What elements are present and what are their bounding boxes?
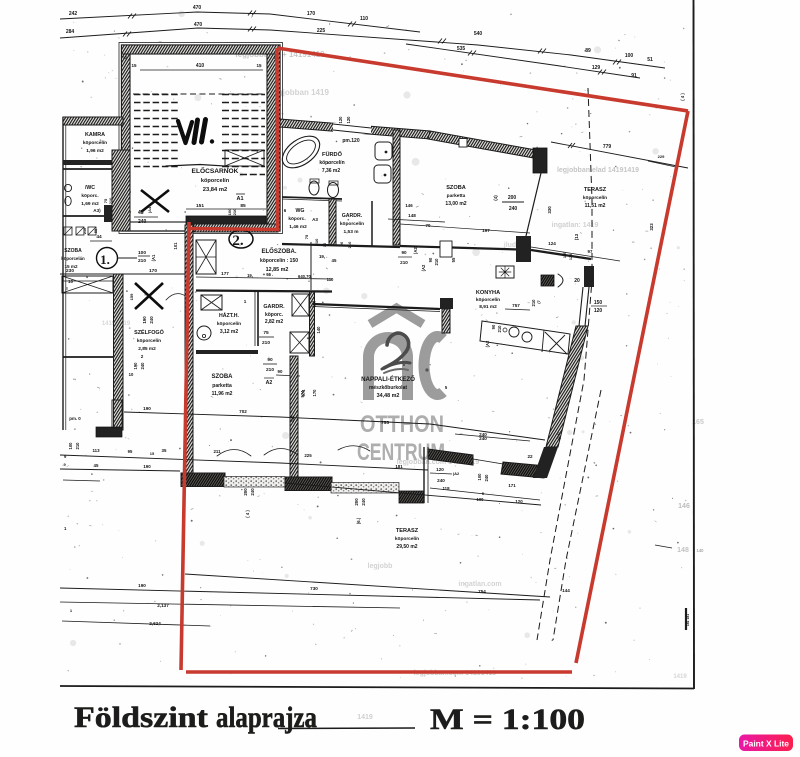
svg-text:535: 535 — [457, 46, 466, 52]
svg-text:240: 240 — [437, 478, 445, 483]
svg-text:129: 129 — [592, 65, 601, 71]
svg-text:75: 75 — [263, 330, 269, 336]
svg-text:köporcelín: köporcelín — [137, 338, 161, 344]
svg-text:(A1: (A1 — [151, 254, 156, 261]
svg-text:242: 242 — [69, 11, 78, 17]
svg-text:+ 95 .: + 95 . — [263, 272, 274, 277]
svg-text:640,70,: 640,70, — [298, 274, 312, 279]
svg-text:köporcelán: köporcelán — [61, 256, 85, 261]
svg-text:470: 470 — [194, 22, 203, 28]
svg-text:240: 240 — [149, 316, 154, 324]
svg-text:211: 211 — [213, 449, 221, 454]
svg-text:159: 159 — [129, 293, 134, 300]
svg-text:pm.120: pm.120 — [342, 138, 359, 144]
svg-text:140: 140 — [697, 548, 705, 553]
svg-text:1: 1 — [244, 299, 247, 304]
svg-text:210: 210 — [232, 208, 237, 215]
svg-text:A3: A3 — [312, 217, 318, 222]
svg-text:150: 150 — [594, 300, 603, 306]
svg-text:120: 120 — [346, 116, 351, 124]
svg-text:(13: (13 — [574, 233, 579, 240]
svg-text:323: 323 — [649, 223, 654, 231]
svg-text:225: 225 — [304, 453, 312, 458]
svg-text:210: 210 — [400, 260, 408, 265]
svg-text:190: 190 — [133, 362, 138, 370]
svg-text:181 181: 181 181 — [686, 614, 690, 626]
svg-text:1.: 1. — [100, 252, 110, 267]
svg-text:90: 90 — [401, 250, 407, 255]
svg-text:124: 124 — [548, 241, 556, 246]
svg-text:44: 44 — [96, 234, 102, 240]
svg-text:ELŐSZOBA.: ELŐSZOBA. — [261, 248, 296, 255]
svg-text:19,: 19, — [247, 273, 253, 278]
svg-text:(A2: (A2 — [485, 340, 490, 347]
svg-text:225: 225 — [317, 28, 326, 34]
svg-text:1,96 m2: 1,96 m2 — [86, 148, 104, 154]
svg-text:22: 22 — [527, 454, 533, 459]
svg-text:779: 779 — [603, 144, 612, 150]
svg-text:702: 702 — [239, 409, 247, 414]
svg-text:346: 346 — [290, 415, 295, 422]
svg-text:7,36 m2: 7,36 m2 — [322, 168, 341, 174]
svg-text:köporcelín: köporcelín — [583, 195, 607, 201]
svg-text:90: 90 — [278, 369, 283, 374]
svg-text:(A2: (A2 — [453, 471, 460, 476]
svg-text:95: 95 — [128, 449, 133, 454]
svg-text:2: 2 — [141, 354, 144, 359]
svg-text:91: 91 — [631, 73, 637, 79]
svg-text:190: 190 — [143, 464, 151, 469]
svg-text:jlud: jlud — [503, 242, 516, 249]
svg-text:( 4 ): ( 4 ) — [245, 510, 250, 518]
svg-text:45: 45 — [138, 210, 144, 216]
svg-text:197: 197 — [482, 228, 490, 233]
svg-text:(A2: (A2 — [421, 264, 426, 271]
svg-text:90: 90 — [428, 257, 433, 262]
svg-text:90: 90 — [267, 357, 273, 363]
svg-text:170: 170 — [307, 11, 316, 17]
svg-text:210: 210 — [266, 367, 274, 373]
svg-text:240: 240 — [361, 498, 366, 506]
svg-text:1,69 m2: 1,69 m2 — [81, 201, 99, 207]
svg-text:köporcelín: köporcelín — [395, 536, 419, 542]
svg-text:240: 240 — [484, 474, 489, 482]
svg-text:1419: 1419 — [673, 674, 687, 680]
svg-text:89: 89 — [585, 48, 591, 54]
svg-text:190: 190 — [138, 583, 146, 588]
svg-text:SZOBA: SZOBA — [64, 248, 82, 254]
svg-text:KONYHA: KONYHA — [476, 290, 500, 296]
svg-text:10: 10 — [129, 372, 134, 377]
svg-text:110: 110 — [360, 16, 368, 22]
svg-text:GARDR.: GARDR. — [263, 304, 285, 310]
svg-text:45: 45 — [332, 258, 337, 263]
svg-text:Földszint: Földszint — [74, 701, 208, 734]
svg-text:757: 757 — [512, 303, 520, 308]
svg-text:A3): A3) — [93, 208, 101, 213]
svg-text:100: 100 — [68, 442, 73, 450]
svg-text:240: 240 — [509, 206, 518, 212]
svg-text:284: 284 — [66, 29, 75, 35]
svg-text:755: 755 — [381, 420, 389, 426]
svg-text:parketta: parketta — [447, 193, 466, 199]
svg-text:151: 151 — [196, 203, 204, 209]
svg-text:120: 120 — [569, 254, 573, 260]
svg-text:FÜRDŐ: FÜRDŐ — [322, 151, 343, 158]
svg-text:1,53 m: 1,53 m — [344, 229, 359, 235]
svg-text:KAMRA: KAMRA — [85, 132, 105, 138]
svg-text:190: 190 — [142, 316, 147, 324]
svg-text:WG: WG — [296, 208, 305, 214]
svg-text:(A2): (A2) — [413, 245, 418, 254]
svg-text:200: 200 — [354, 498, 359, 506]
svg-text:SZÉLFOGÓ: SZÉLFOGÓ — [134, 328, 164, 336]
svg-text:171: 171 — [508, 483, 516, 488]
svg-text:(6.): (6.) — [356, 517, 361, 524]
svg-text:140: 140 — [316, 326, 321, 334]
svg-text:köporcelín : 150: köporcelín : 150 — [260, 258, 298, 264]
svg-text:2.: 2. — [232, 233, 244, 249]
svg-text:köporc.: köporc. — [81, 193, 98, 199]
svg-text:2,82 m2: 2,82 m2 — [265, 319, 284, 325]
svg-text:230: 230 — [66, 268, 74, 274]
svg-text:85: 85 — [240, 203, 246, 209]
svg-text:210: 210 — [497, 325, 502, 333]
svg-text:100: 100 — [477, 497, 485, 502]
svg-text:229: 229 — [658, 154, 665, 159]
svg-text:köporcelín: köporcelín — [217, 321, 241, 327]
svg-text:730: 730 — [310, 586, 318, 591]
svg-text:köporcelín: köporcelín — [340, 221, 364, 227]
svg-text:240: 240 — [140, 362, 145, 370]
svg-text:540: 540 — [474, 31, 483, 37]
svg-text:51: 51 — [647, 57, 653, 63]
svg-text:23,84 m2: 23,84 m2 — [203, 187, 228, 193]
svg-text:A2: A2 — [266, 380, 273, 386]
svg-text:110: 110 — [327, 277, 334, 282]
svg-text:/WC: /WC — [85, 185, 95, 191]
svg-text:75: 75 — [304, 234, 309, 239]
svg-text:M = 1:100: M = 1:100 — [430, 703, 585, 736]
svg-text:210: 210 — [434, 258, 439, 266]
svg-text:144: 144 — [562, 588, 570, 593]
svg-text:ELŐCSARNOK: ELŐCSARNOK — [192, 166, 239, 175]
svg-text:20: 20 — [574, 278, 580, 284]
svg-text:TERASZ: TERASZ — [396, 528, 419, 534]
svg-text:146: 146 — [678, 503, 690, 510]
svg-text:210: 210 — [83, 228, 87, 234]
svg-text:(4): (4) — [493, 195, 498, 201]
svg-text:SZOBA: SZOBA — [446, 185, 466, 191]
svg-text:177: 177 — [221, 271, 229, 276]
svg-text:181: 181 — [395, 464, 403, 469]
svg-text:100: 100 — [138, 250, 146, 256]
svg-text:I: I — [66, 286, 67, 291]
svg-text:90: 90 — [491, 324, 496, 329]
svg-text:240: 240 — [138, 219, 147, 225]
svg-text:55: 55 — [451, 257, 456, 262]
svg-text:köporcelín: köporcelín — [476, 297, 500, 303]
svg-text:köporc.: köporc. — [288, 216, 305, 222]
svg-text:240: 240 — [250, 488, 255, 496]
svg-text:15: 15 — [150, 451, 155, 456]
svg-text:19,: 19, — [319, 254, 325, 259]
svg-text:pm. 0: pm. 0 — [69, 416, 81, 421]
svg-text:köporcelín: köporcelín — [319, 160, 344, 166]
svg-text:GARDR.: GARDR. — [342, 213, 363, 219]
svg-text:8,91 m2: 8,91 m2 — [479, 304, 497, 310]
svg-text:120: 120 — [515, 499, 523, 504]
svg-text:200: 200 — [508, 195, 517, 201]
svg-text:parketta: parketta — [212, 383, 232, 389]
svg-text:148: 148 — [408, 213, 416, 218]
svg-text:210: 210 — [262, 340, 270, 346]
svg-text:34,48 m2: 34,48 m2 — [377, 393, 400, 399]
svg-text:210: 210 — [75, 442, 80, 450]
svg-text:2,624: 2,624 — [149, 621, 161, 626]
svg-text:11,96 m2: 11,96 m2 — [212, 391, 233, 397]
svg-text:ingatlan: 1419: ingatlan: 1419 — [552, 222, 599, 229]
svg-text:210: 210 — [138, 258, 146, 264]
svg-text:100: 100 — [563, 252, 567, 258]
svg-text:köporcelín: köporcelín — [83, 140, 107, 146]
svg-text:146: 146 — [405, 203, 413, 208]
svg-text:200: 200 — [243, 488, 248, 496]
svg-text:köporcelín: köporcelín — [201, 178, 230, 184]
svg-text:120: 120 — [338, 116, 343, 124]
svg-text:100: 100 — [477, 473, 482, 481]
svg-text:170: 170 — [312, 389, 317, 397]
svg-text:11,51 m2: 11,51 m2 — [585, 203, 606, 209]
svg-text:1,46 m2: 1,46 m2 — [289, 224, 307, 230]
svg-text:ingatlan.com: ingatlan.com — [458, 581, 501, 588]
svg-text:55: 55 — [94, 229, 98, 233]
svg-text:SZOBA: SZOBA — [212, 374, 234, 380]
svg-text:2,85 m2: 2,85 m2 — [138, 346, 156, 352]
svg-text:13,00 m2: 13,00 m2 — [445, 201, 466, 207]
svg-text:( 4 ): ( 4 ) — [680, 93, 685, 101]
svg-text:Paint X Lite: Paint X Lite — [743, 740, 789, 749]
svg-text:101: 101 — [173, 242, 178, 250]
svg-text:190: 190 — [143, 406, 151, 411]
svg-text:574: 574 — [301, 389, 306, 397]
svg-text:12: 12 — [123, 55, 128, 60]
svg-text:120: 120 — [436, 467, 444, 472]
svg-text:köporc.: köporc. — [265, 312, 284, 318]
svg-text:A1: A1 — [236, 196, 243, 202]
svg-text:(A4: (A4 — [147, 206, 152, 213]
svg-text:410: 410 — [196, 63, 205, 69]
svg-text:HÁZT.H.: HÁZT.H. — [219, 312, 239, 319]
svg-text:2,137: 2,137 — [157, 603, 169, 608]
svg-text:330: 330 — [547, 206, 552, 214]
svg-text:170: 170 — [149, 268, 157, 274]
svg-text:470: 470 — [193, 5, 202, 11]
svg-text:15: 15 — [131, 63, 137, 68]
svg-text:120: 120 — [594, 308, 603, 314]
svg-text:1419: 1419 — [357, 714, 373, 721]
svg-text:15: 15 — [256, 63, 262, 68]
svg-text:3,12 m2: 3,12 m2 — [220, 329, 239, 335]
svg-text:148: 148 — [677, 547, 689, 554]
svg-text:legjobban.elad 14191419: legjobban.elad 14191419 — [557, 167, 639, 174]
svg-text:100: 100 — [625, 53, 634, 59]
svg-text:mészkőburkolat: mészkőburkolat — [369, 385, 407, 391]
svg-text:29,50 m2: 29,50 m2 — [396, 544, 417, 550]
svg-text:113: 113 — [92, 448, 100, 453]
svg-text:(14): (14) — [556, 432, 561, 440]
svg-text:45: 45 — [94, 463, 99, 468]
svg-text:70: 70 — [426, 223, 431, 228]
svg-text:legjobb: legjobb — [368, 563, 393, 570]
svg-text:35: 35 — [162, 448, 167, 453]
svg-text:754: 754 — [478, 589, 486, 594]
svg-text:NAPPALI-ÉTKEZŐ: NAPPALI-ÉTKEZŐ — [361, 375, 415, 383]
svg-text:TERASZ: TERASZ — [584, 187, 607, 193]
